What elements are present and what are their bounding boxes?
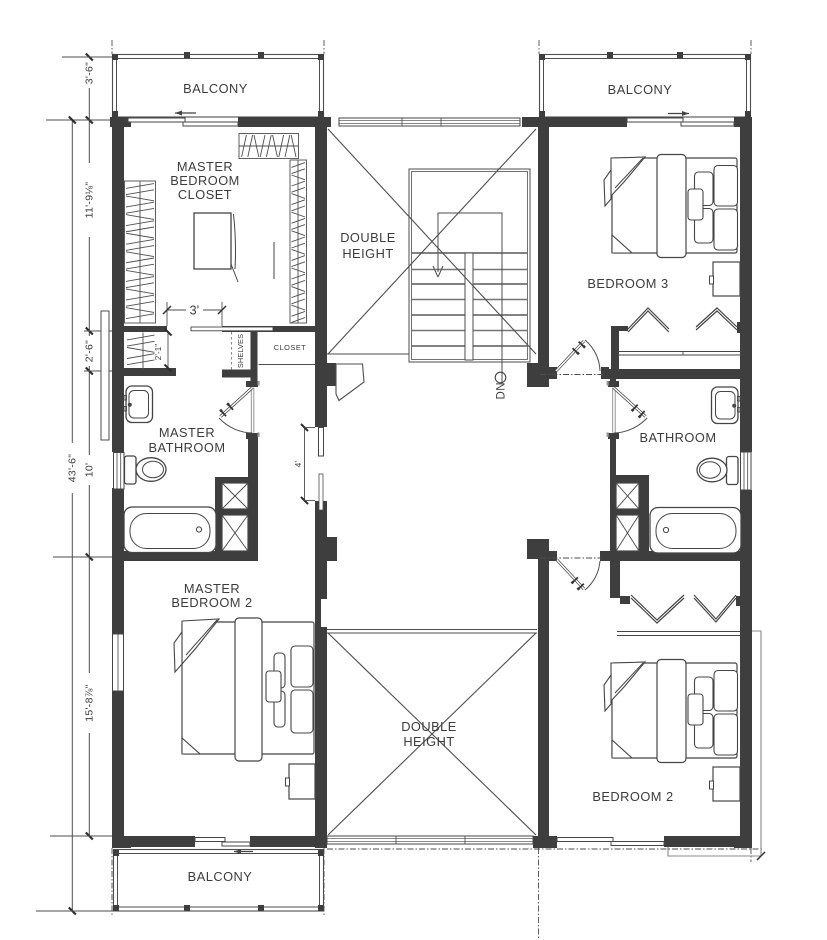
svg-text:BATHROOM: BATHROOM [640,430,717,445]
svg-text:CLOSET: CLOSET [178,187,232,202]
svg-text:HEIGHT: HEIGHT [342,246,393,261]
svg-text:15'-8⅞": 15'-8⅞" [83,684,95,722]
svg-text:BATHROOM: BATHROOM [149,440,226,455]
svg-text:MASTER: MASTER [177,159,233,174]
svg-text:MASTER: MASTER [159,425,215,440]
svg-text:SHELVES: SHELVES [236,334,245,368]
svg-text:3': 3' [190,304,200,318]
svg-text:BALCONY: BALCONY [188,869,253,884]
svg-text:HEIGHT: HEIGHT [403,734,454,749]
svg-text:4': 4' [294,461,303,468]
svg-text:BEDROOM 2: BEDROOM 2 [592,789,673,804]
svg-text:BEDROOM 3: BEDROOM 3 [587,276,668,291]
svg-text:CLOSET: CLOSET [274,343,307,352]
svg-text:MASTER: MASTER [184,581,240,596]
svg-text:2'-1": 2'-1" [154,344,163,360]
svg-text:DN: DN [496,382,508,399]
svg-text:BEDROOM: BEDROOM [170,173,240,188]
svg-text:DOUBLE: DOUBLE [340,230,396,245]
svg-text:BEDROOM 2: BEDROOM 2 [171,595,252,610]
svg-text:2'-6": 2'-6" [83,340,95,362]
svg-text:BALCONY: BALCONY [608,82,673,97]
svg-text:11'-9⅛": 11'-9⅛" [83,182,95,219]
svg-text:43'-6": 43'-6" [66,454,78,483]
svg-text:10': 10' [83,463,95,478]
svg-text:DOUBLE: DOUBLE [401,719,457,734]
svg-text:3'-6": 3'-6" [83,62,95,84]
svg-text:BALCONY: BALCONY [183,81,248,96]
